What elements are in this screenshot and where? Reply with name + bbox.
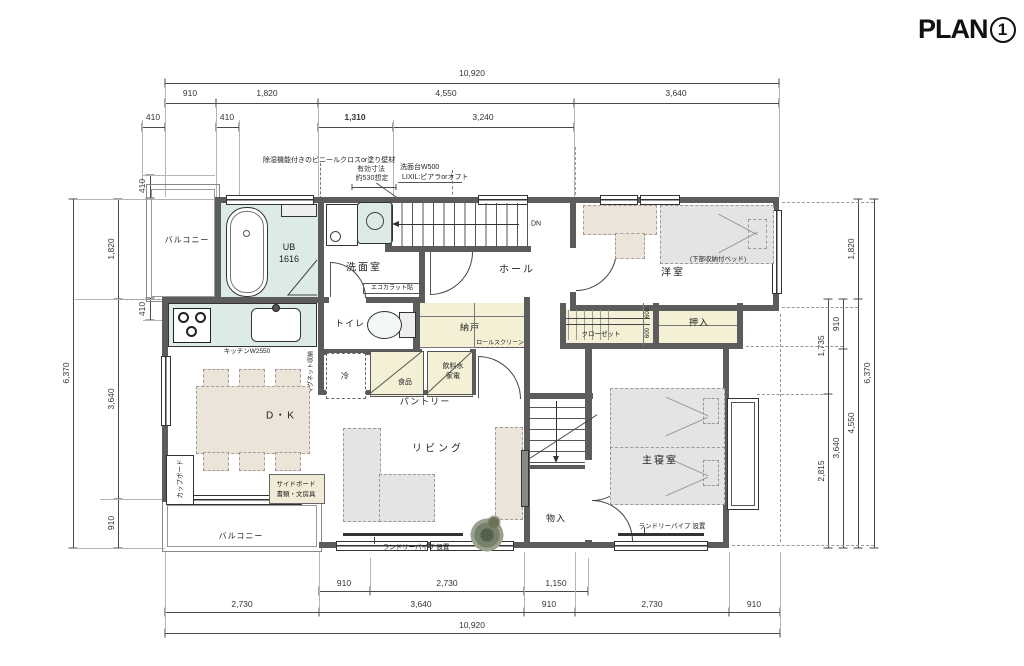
room-label-toilet: トイレ (335, 317, 365, 330)
centerline (575, 147, 576, 195)
faucet (272, 304, 280, 312)
closet-edge (643, 303, 644, 347)
dim-line (216, 127, 239, 128)
extension-line (780, 552, 781, 633)
closet-pipe (566, 318, 650, 319)
dim-tick (854, 299, 863, 300)
dim-label: 4,550 (435, 88, 456, 98)
room-label-bath-2: 1616 (279, 254, 299, 264)
room-label-dk: D・K (266, 407, 296, 422)
bath-folding-door (284, 258, 320, 298)
dim-label: 410 (146, 112, 160, 122)
dim-label: 6,370 (61, 362, 71, 383)
centerline (732, 545, 874, 546)
floor-plan-sheet: PLAN1 10,920 910 1,820 4,550 3,640 410 4… (0, 0, 1024, 666)
dim-label: 910 (747, 599, 761, 609)
dim-label: 1,820 (846, 238, 856, 259)
room-label-closet: クローゼット (582, 328, 621, 338)
stairs-arrow-line (397, 224, 519, 225)
dim-line (165, 83, 779, 84)
room-label-storeroom: 納戸 (460, 321, 480, 334)
dim-label: 410 (220, 112, 234, 122)
dim-tick (824, 299, 833, 300)
room-label-washroom: 洗面室 (346, 259, 382, 274)
door-arc-hall (430, 252, 473, 295)
page-title: PLAN1 (918, 14, 1016, 45)
desk-chair (615, 233, 645, 259)
dim-line (73, 199, 74, 548)
centerline (782, 202, 874, 203)
wall (419, 246, 425, 303)
note-ecocarat: エコカラット貼 (371, 283, 413, 292)
dim-label: 3,640 (831, 437, 841, 458)
pillow (703, 398, 719, 424)
room-label-pantry: パントリー (400, 395, 450, 408)
note-down: DN (531, 221, 541, 228)
note-cupboard: カップボード (174, 460, 184, 499)
wall (560, 343, 743, 349)
window (614, 541, 708, 551)
room-label-master: 主寝室 (642, 452, 678, 467)
extension-line (165, 85, 166, 197)
dim-label: 910 (542, 599, 556, 609)
sink (251, 308, 301, 342)
dining-chair (203, 452, 229, 471)
pillow (703, 460, 719, 486)
dim-line (142, 127, 165, 128)
note-effective-dim-2: 約530想定 (356, 173, 389, 183)
dim-line (318, 127, 574, 128)
note-sideboard-2: 書類・文房具 (277, 488, 316, 498)
dim-label: 1,310 (344, 112, 365, 122)
burner (195, 312, 206, 323)
room-label-hall: ホール (499, 261, 535, 276)
dim-label: 1,820 (106, 238, 116, 259)
dim-label: 3,640 (665, 88, 686, 98)
bathtub-inner (230, 211, 264, 293)
label-drink-1: 飲料水 (443, 361, 464, 371)
dim-label: 3,240 (472, 112, 493, 122)
burner (186, 326, 197, 337)
note-sideboard-1: サイドボード (277, 478, 316, 488)
dim-tick (854, 199, 863, 200)
dim-label: 1,820 (256, 88, 277, 98)
tv (521, 450, 529, 507)
desk (583, 205, 657, 235)
dim-line (319, 591, 588, 592)
closet-depth-a: 600 (645, 308, 651, 318)
dim-label: 10,920 (459, 620, 485, 630)
dim-label: 910 (106, 516, 116, 530)
door-leaf (430, 252, 431, 294)
room-label-balcony-top: バルコニー (165, 235, 210, 246)
stairs-arrowhead (553, 456, 559, 463)
dim-label: 2,730 (436, 578, 457, 588)
centerline (780, 314, 781, 542)
dim-label: 1,150 (545, 578, 566, 588)
label-drink-2: 家電 (446, 371, 460, 381)
dim-label: 3,640 (410, 599, 431, 609)
extension-line (318, 105, 319, 197)
dim-label: 6,370 (862, 362, 872, 383)
door-arc-western (576, 250, 617, 291)
room-label-western: 洋室 (661, 264, 685, 279)
dim-label: 910 (337, 578, 351, 588)
room-label-living: リビング (412, 440, 464, 455)
extension-line (143, 175, 215, 176)
note-roll-screen: ロールスクリーン (476, 338, 524, 347)
pantry-shelf-food (370, 351, 424, 397)
extension-line (729, 552, 730, 612)
plan-title-text: PLAN (918, 14, 988, 44)
dim-line (828, 299, 829, 548)
toilet-bowl (367, 311, 402, 339)
dim-label: 2,815 (816, 460, 826, 481)
dim-tick (870, 199, 879, 200)
dim-line (843, 299, 844, 548)
laundry-pipe (618, 533, 704, 536)
window (640, 195, 680, 205)
dim-line (118, 199, 119, 548)
door-arc-pantry (478, 356, 521, 399)
storeroom-divider (474, 303, 475, 347)
laundry-pipe (343, 533, 463, 536)
note-vanity-1: 洗面台W500 (400, 162, 439, 172)
door-opening (585, 460, 592, 540)
room-label-bath-1: UB (283, 242, 296, 252)
dim-tick (839, 299, 848, 300)
window (161, 356, 171, 426)
closet-depth-b: 600 (645, 328, 651, 338)
extension-line (779, 85, 780, 197)
label-food: 食品 (398, 377, 412, 387)
extension-line (588, 558, 589, 591)
storeroom-shelf (420, 316, 524, 317)
dim-line (165, 633, 780, 634)
wall (560, 303, 566, 347)
dim-label: 2,730 (641, 599, 662, 609)
extension-line (239, 120, 240, 197)
extension-line (143, 320, 162, 321)
note-bed: (下部収納付ベッド) (690, 253, 746, 263)
stairs-arrowhead (392, 221, 399, 227)
roll-screen-line (476, 347, 524, 348)
dim-tick (396, 184, 397, 190)
note-kitchen-width: キッチンW2550 (224, 345, 271, 355)
washer-drain (330, 231, 341, 242)
dim-tick (870, 548, 879, 549)
extension-line (100, 499, 162, 500)
window (600, 195, 638, 205)
dining-chair (275, 452, 301, 471)
dim-line (165, 612, 780, 613)
note-leader (452, 170, 453, 200)
stairs-arrow-line (556, 401, 557, 457)
door-leaf (478, 356, 479, 398)
mini-dim-line (352, 187, 396, 188)
note-leader (320, 163, 321, 199)
tv-board (495, 427, 523, 520)
bath-counter (281, 204, 317, 217)
wall (215, 197, 221, 303)
wall (318, 349, 324, 395)
dining-chair (239, 452, 265, 471)
dim-line (858, 199, 859, 548)
extension-line (75, 548, 165, 549)
extension-line (370, 558, 371, 591)
note-laundry-bedroom: ランドリーパイプ 設置 (639, 520, 706, 530)
plan-number-circle: 1 (990, 17, 1016, 43)
dim-tick (839, 548, 848, 549)
dim-line (874, 199, 875, 548)
laundry-leader (374, 537, 375, 544)
dim-tick (839, 349, 848, 350)
washbasin-bowl (366, 212, 384, 230)
bay-window-inner (731, 402, 755, 506)
door-leaf (330, 262, 331, 297)
dim-label: 410 (137, 302, 147, 316)
room-label-oshiire: 押入 (689, 316, 709, 329)
wall (526, 465, 589, 469)
note-vanity-2: LIXIL:ピアラorオフト (402, 172, 469, 182)
centerline (782, 307, 858, 308)
dim-label: 4,550 (846, 412, 856, 433)
extension-line (575, 552, 576, 612)
dim-label: 10,920 (459, 68, 485, 78)
room-label-storage: 物入 (546, 512, 566, 525)
centerline (746, 346, 843, 347)
dim-tick (854, 548, 863, 549)
dim-line (165, 103, 779, 104)
label-fridge: 冷 (341, 371, 349, 382)
bathtub-drain (243, 230, 250, 237)
dim-label: 910 (183, 88, 197, 98)
room-label-balcony-bottom: バルコニー (219, 531, 264, 542)
extension-line (524, 552, 525, 612)
burner (178, 312, 189, 323)
potted-plant-leaf (486, 514, 502, 530)
dim-label: 3,640 (106, 388, 116, 409)
note-laundry-living: ランドリーパイプ 設置 (383, 541, 450, 551)
extension-line (165, 552, 166, 633)
sofa (379, 474, 435, 522)
closet-pipe (566, 324, 650, 325)
dim-label: 910 (831, 317, 841, 331)
sofa (343, 428, 381, 522)
dim-tick (352, 184, 353, 190)
dim-label: 2,730 (231, 599, 252, 609)
extension-line (319, 552, 320, 612)
dim-tick (824, 548, 833, 549)
centerline (757, 394, 828, 395)
